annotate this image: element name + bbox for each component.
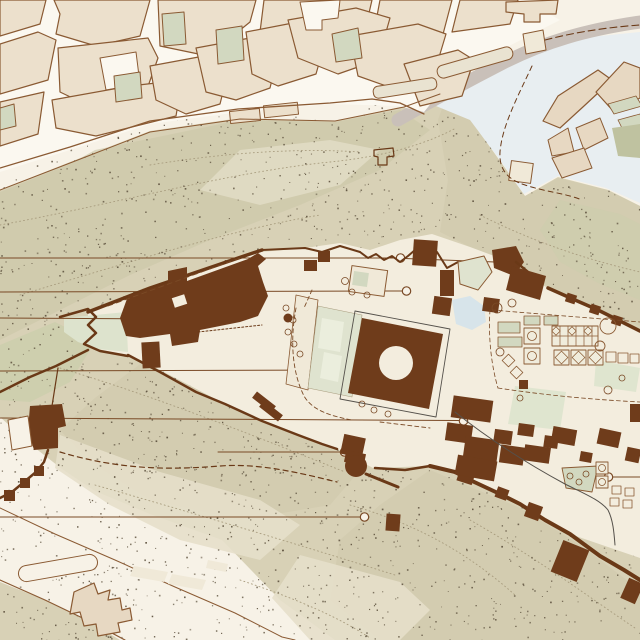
terrain-stipple-dot [136,271,137,272]
terrain-stipple-dot [232,493,233,494]
wall-tower [318,251,330,262]
terrain-stipple-dot [520,612,521,613]
terrain-stipple-dot [400,234,402,236]
terrain-stipple-dot [345,164,346,165]
terrain-stipple-dot [412,221,413,222]
terrain-stipple-dot [338,127,339,128]
terrain-stipple-dot [451,214,452,215]
terrain-stipple-dot [166,565,167,566]
terrain-stipple-dot [445,564,447,566]
terrain-stipple-dot [42,633,43,634]
terrain-stipple-dot [363,576,364,577]
terrain-stipple-dot [2,334,4,336]
terrain-stipple-dot [252,508,253,509]
terrain-stipple-dot [242,209,244,211]
terrain-stipple-dot [147,595,148,596]
terrain-stipple-dot [427,178,429,180]
terrain-stipple-dot [281,198,283,200]
terrain-stipple-dot [111,422,113,424]
terrain-stipple-dot [395,546,396,547]
terrain-stipple-dot [9,389,10,390]
terrain-stipple-dot [21,388,22,389]
terrain-stipple-dot [145,542,147,544]
terrain-stipple-dot [194,469,196,471]
terrain-stipple-dot [526,264,527,265]
terrain-stipple-dot [129,362,130,363]
terrain-stipple-dot [216,558,217,559]
terrain-stipple-dot [289,122,291,124]
terrain-stipple-dot [116,255,118,257]
terrain-stipple-dot [138,458,139,459]
terrain-stipple-dot [171,190,172,191]
terrain-stipple-dot [464,621,465,622]
terrain-stipple-dot [250,207,251,208]
terrain-stipple-dot [305,512,306,513]
terrain-stipple-dot [480,165,482,167]
terrain-stipple-dot [363,524,364,525]
terrain-stipple-dot [315,603,316,604]
terrain-stipple-dot [136,605,137,606]
terrain-stipple-dot [288,439,289,440]
terrain-stipple-dot [117,152,118,153]
terrain-stipple-dot [479,513,480,514]
terrain-stipple-dot [69,237,70,238]
terrain-stipple-dot [168,409,170,411]
terrain-stipple-dot [119,443,120,444]
terrain-stipple-dot [103,243,105,245]
terrain-stipple-dot [127,379,128,380]
terrain-stipple-dot [287,587,288,588]
terrain-stipple-dot [131,260,132,261]
terrain-stipple-dot [301,543,302,544]
terrain-stipple-dot [408,528,409,529]
terrain-stipple-dot [524,618,525,619]
terrain-stipple-dot [223,163,224,164]
terrain-stipple-dot [553,225,554,226]
terrain-stipple-dot [446,523,447,524]
terrain-stipple-dot [350,500,352,502]
terrain-stipple-dot [541,268,542,269]
terrain-stipple-dot [630,568,631,569]
terrain-stipple-dot [326,505,327,506]
terrain-stipple-dot [338,128,340,130]
terrain-stipple-dot [107,570,108,571]
terrain-stipple-dot [40,542,41,543]
terrain-stipple-dot [149,269,150,270]
terrain-stipple-dot [25,250,27,252]
terrain-stipple-dot [618,593,620,595]
terrain-stipple-dot [129,149,130,150]
terrain-stipple-dot [477,241,478,242]
terrain-stipple-dot [275,472,276,473]
terrain-stipple-dot [369,609,370,610]
terrain-stipple-dot [205,468,206,469]
terrain-stipple-dot [373,592,374,593]
terrain-stipple-dot [116,549,117,550]
terrain-stipple-dot [524,228,525,229]
terrain-stipple-dot [221,475,222,476]
terrain-stipple-dot [86,267,87,268]
terrain-stipple-dot [486,492,487,493]
terrain-stipple-dot [189,553,190,554]
terrain-stipple-dot [470,185,471,186]
terrain-stipple-dot [144,254,145,255]
terrain-stipple-dot [274,463,275,464]
terrain-stipple-dot [313,463,314,464]
terrain-stipple-dot [419,626,421,628]
terrain-stipple-dot [244,447,245,448]
terrain-stipple-dot [603,280,604,281]
terrain-stipple-dot [421,126,423,128]
terrain-stipple-dot [24,265,25,266]
terrain-stipple-dot [196,160,197,161]
terrain-stipple-dot [556,614,558,616]
terrain-stipple-dot [349,234,350,235]
terrain-stipple-dot [564,214,565,215]
terrain-stipple-dot [141,431,142,432]
terrain-stipple-dot [240,558,241,559]
terrain-stipple-dot [306,216,308,218]
terrain-stipple-dot [230,459,232,461]
terrain-stipple-dot [484,627,485,628]
terrain-stipple-dot [161,252,162,253]
terrain-stipple-dot [301,219,303,221]
terrain-stipple-dot [18,365,20,367]
terrain-stipple-dot [118,138,119,139]
terrain-stipple-dot [41,638,42,639]
terrain-stipple-dot [505,203,507,205]
terrain-stipple-dot [469,517,470,518]
terrain-stipple-dot [380,180,381,181]
terrain-stipple-dot [65,223,67,225]
terrain-stipple-dot [338,234,339,235]
terrain-stipple-dot [518,239,519,240]
terrain-stipple-dot [336,136,337,137]
terrain-stipple-dot [420,222,421,223]
terrain-stipple-dot [310,627,311,628]
terrain-stipple-dot [514,618,515,619]
terrain-stipple-dot [88,403,90,405]
terrain-stipple-dot [618,254,620,256]
terrain-stipple-dot [56,511,57,512]
terrain-stipple-dot [358,152,360,154]
terrain-stipple-dot [324,601,326,603]
terrain-stipple-dot [308,606,309,607]
terrain-stipple-dot [133,177,134,178]
terrain-stipple-dot [102,224,103,225]
terrain-stipple-dot [321,588,323,590]
terrain-stipple-dot [249,133,250,134]
terrain-stipple-dot [472,509,474,511]
terrain-stipple-dot [531,192,532,193]
medina-building [517,423,535,437]
terrain-stipple-dot [570,188,571,189]
terrain-stipple-dot [243,636,244,637]
garden-bed [524,316,540,325]
terrain-stipple-dot [123,251,124,252]
terrain-stipple-dot [283,189,285,191]
terrain-stipple-dot [410,582,411,583]
green-building [216,26,244,64]
terrain-stipple-dot [304,467,305,468]
terrain-stipple-dot [627,258,629,260]
terrain-stipple-dot [428,164,429,165]
terrain-stipple-dot [499,191,500,192]
terrain-stipple-dot [128,487,129,488]
terrain-stipple-dot [88,254,89,255]
terrain-stipple-dot [339,221,340,222]
terrain-stipple-dot [301,157,302,158]
terrain-stipple-dot [192,396,193,397]
terrain-stipple-dot [34,619,35,620]
terrain-stipple-dot [587,275,588,276]
justice-gate-round-front [345,455,367,477]
terrain-stipple-dot [229,218,230,219]
terrain-stipple-dot [89,372,90,373]
terrain-stipple-dot [173,604,174,605]
terrain-stipple-dot [375,638,376,639]
terrain-stipple-dot [263,605,264,606]
terrain-stipple-dot [89,581,90,582]
terrain-stipple-dot [393,565,394,566]
terrain-stipple-dot [156,466,157,467]
terrain-stipple-dot [384,117,385,118]
terrain-stipple-dot [361,190,363,192]
terrain-stipple-dot [533,568,535,570]
terrain-stipple-dot [373,231,374,232]
terrain-stipple-dot [323,539,324,540]
terrain-stipple-dot [114,444,116,446]
terrain-stipple-dot [20,339,22,341]
terrain-stipple-dot [260,611,261,612]
terrain-stipple-dot [435,510,436,511]
terrain-stipple-dot [613,293,614,294]
terrain-stipple-dot [218,549,219,550]
terrain-stipple-dot [268,237,269,238]
terrain-stipple-dot [148,478,149,479]
terrain-stipple-dot [357,218,359,220]
terrain-stipple-dot [127,569,128,570]
terrain-stipple-dot [2,201,4,203]
terrain-stipple-dot [91,410,92,411]
terrain-stipple-dot [131,473,132,474]
terrain-stipple-dot [421,635,422,636]
fountain-box [524,348,540,364]
terrain-stipple-dot [100,457,101,458]
terrain-stipple-dot [627,250,628,251]
terrain-stipple-dot [614,302,615,303]
terrain-stipple-dot [75,393,76,394]
diamond-parterre-box [571,350,586,365]
terrain-stipple-dot [51,261,52,262]
terrain-stipple-dot [111,638,113,640]
terrain-stipple-dot [429,617,430,618]
terrain-stipple-dot [569,247,570,248]
terrain-stipple-dot [164,176,165,177]
terrain-stipple-dot [398,636,400,638]
terrain-stipple-dot [182,136,183,137]
terrain-stipple-dot [176,265,177,266]
terrain-stipple-dot [293,119,294,120]
terrain-stipple-dot [160,538,161,539]
terrain-stipple-dot [291,466,292,467]
terrain-stipple-dot [174,498,175,499]
terrain-stipple-dot [619,253,620,254]
terrain-stipple-dot [578,601,579,602]
terrain-stipple-dot [93,630,94,631]
terrain-stipple-dot [176,221,177,222]
terrain-stipple-dot [549,560,550,561]
terrain-stipple-dot [493,608,494,609]
terrain-stipple-dot [375,604,376,605]
terrain-stipple-dot [8,315,9,316]
terrain-stipple-dot [118,191,119,192]
terrain-stipple-dot [534,615,535,616]
terrain-stipple-dot [323,633,324,634]
terrain-stipple-dot [362,506,363,507]
garden-bed [544,316,558,325]
terrain-stipple-dot [81,366,82,367]
terrain-stipple-dot [421,215,422,216]
terrain-stipple-dot [47,227,49,229]
terrain-stipple-dot [122,538,123,539]
terrain-stipple-dot [118,176,119,177]
terrain-stipple-dot [275,470,276,471]
terrain-stipple-dot [144,280,145,281]
terrain-stipple-dot [499,210,501,212]
terrain-stipple-dot [155,495,156,496]
terrain-stipple-dot [206,539,207,540]
terrain-stipple-dot [243,251,245,253]
terrain-stipple-dot [365,173,366,174]
terrain-stipple-dot [47,379,48,380]
terrain-stipple-dot [106,404,107,405]
terrain-stipple-dot [66,168,67,169]
terrain-stipple-dot [97,468,98,469]
terrain-stipple-dot [49,631,50,632]
terrain-stipple-dot [15,454,17,456]
terrain-stipple-dot [363,211,364,212]
terrain-stipple-dot [319,460,320,461]
terrain-stipple-dot [542,596,543,597]
terrain-stipple-dot [268,484,269,485]
terrain-stipple-dot [568,539,569,540]
terrain-stipple-dot [380,522,381,523]
terrain-stipple-dot [50,385,51,386]
terrain-stipple-dot [134,628,136,630]
terrain-stipple-dot [550,587,551,588]
terrain-stipple-dot [340,545,341,546]
terrain-stipple-dot [485,231,486,232]
terrain-stipple-dot [505,530,506,531]
terrain-stipple-dot [476,605,477,606]
terrain-stipple-dot [44,324,45,325]
terrain-stipple-dot [463,560,464,561]
terrain-stipple-dot [471,501,472,502]
terrain-stipple-dot [368,184,369,185]
terrain-stipple-dot [65,244,66,245]
terrain-stipple-dot [378,243,379,244]
terrain-stipple-dot [48,599,50,601]
terrain-stipple-dot [14,374,15,375]
terrain-stipple-dot [253,126,254,127]
terrain-stipple-dot [486,180,487,181]
terrain-stipple-dot [43,533,44,534]
terrain-stipple-dot [421,229,422,230]
comares-tower [412,239,438,267]
terrain-stipple-dot [387,611,388,612]
terrain-stipple-dot [563,187,564,188]
terrain-stipple-dot [245,475,246,476]
terrain-stipple-dot [390,229,391,230]
terrain-stipple-dot [14,204,15,205]
terrain-stipple-dot [348,510,349,511]
terrain-stipple-dot [78,282,79,283]
terrain-stipple-dot [2,312,3,313]
terrain-stipple-dot [173,394,175,396]
terrain-stipple-dot [502,525,503,526]
terrain-stipple-dot [165,456,166,457]
terrain-stipple-dot [466,550,468,552]
terrain-stipple-dot [229,567,231,569]
terrain-stipple-dot [472,498,473,499]
terrain-stipple-dot [217,517,219,519]
terrain-stipple-dot [360,511,362,513]
terrain-stipple-dot [118,573,119,574]
terrain-stipple-dot [601,620,602,621]
terrain-stipple-dot [186,119,187,120]
terrain-stipple-dot [614,194,615,195]
terrain-stipple-dot [152,616,154,618]
terrain-stipple-dot [418,507,420,509]
terrain-stipple-dot [3,208,4,209]
terrain-stipple-dot [291,475,293,477]
terrain-stipple-dot [164,477,165,478]
terrain-stipple-dot [165,561,166,562]
terrain-stipple-dot [203,441,204,442]
terrain-stipple-dot [317,187,318,188]
terrain-stipple-dot [151,441,152,442]
terrain-stipple-dot [127,546,128,547]
terrain-stipple-dot [63,271,65,273]
terrain-stipple-dot [204,526,205,527]
terrain-stipple-dot [268,134,269,135]
terrain-stipple-dot [569,621,570,622]
terrain-stipple-dot [143,194,144,195]
terrain-stipple-dot [412,168,414,170]
terrain-stipple-dot [269,600,270,601]
terrain-stipple-dot [152,419,153,420]
terrain-stipple-dot [132,437,133,438]
terrain-stipple-dot [72,179,74,181]
terrain-stipple-dot [217,595,218,596]
terrain-stipple-dot [493,238,494,239]
terrain-stipple-dot [278,592,279,593]
terrain-stipple-dot [295,598,296,599]
terrain-stipple-dot [347,638,348,639]
terrain-stipple-dot [103,201,105,203]
terrain-stipple-dot [110,543,111,544]
terrain-stipple-dot [97,459,99,461]
terrain-stipple-dot [75,633,76,634]
terrain-stipple-dot [58,327,60,329]
terrain-stipple-dot [485,506,486,507]
terrain-stipple-dot [46,220,47,221]
terrain-stipple-dot [584,198,585,199]
terrain-stipple-dot [309,172,310,173]
terrain-stipple-dot [136,589,138,591]
terrain-stipple-dot [384,115,385,116]
